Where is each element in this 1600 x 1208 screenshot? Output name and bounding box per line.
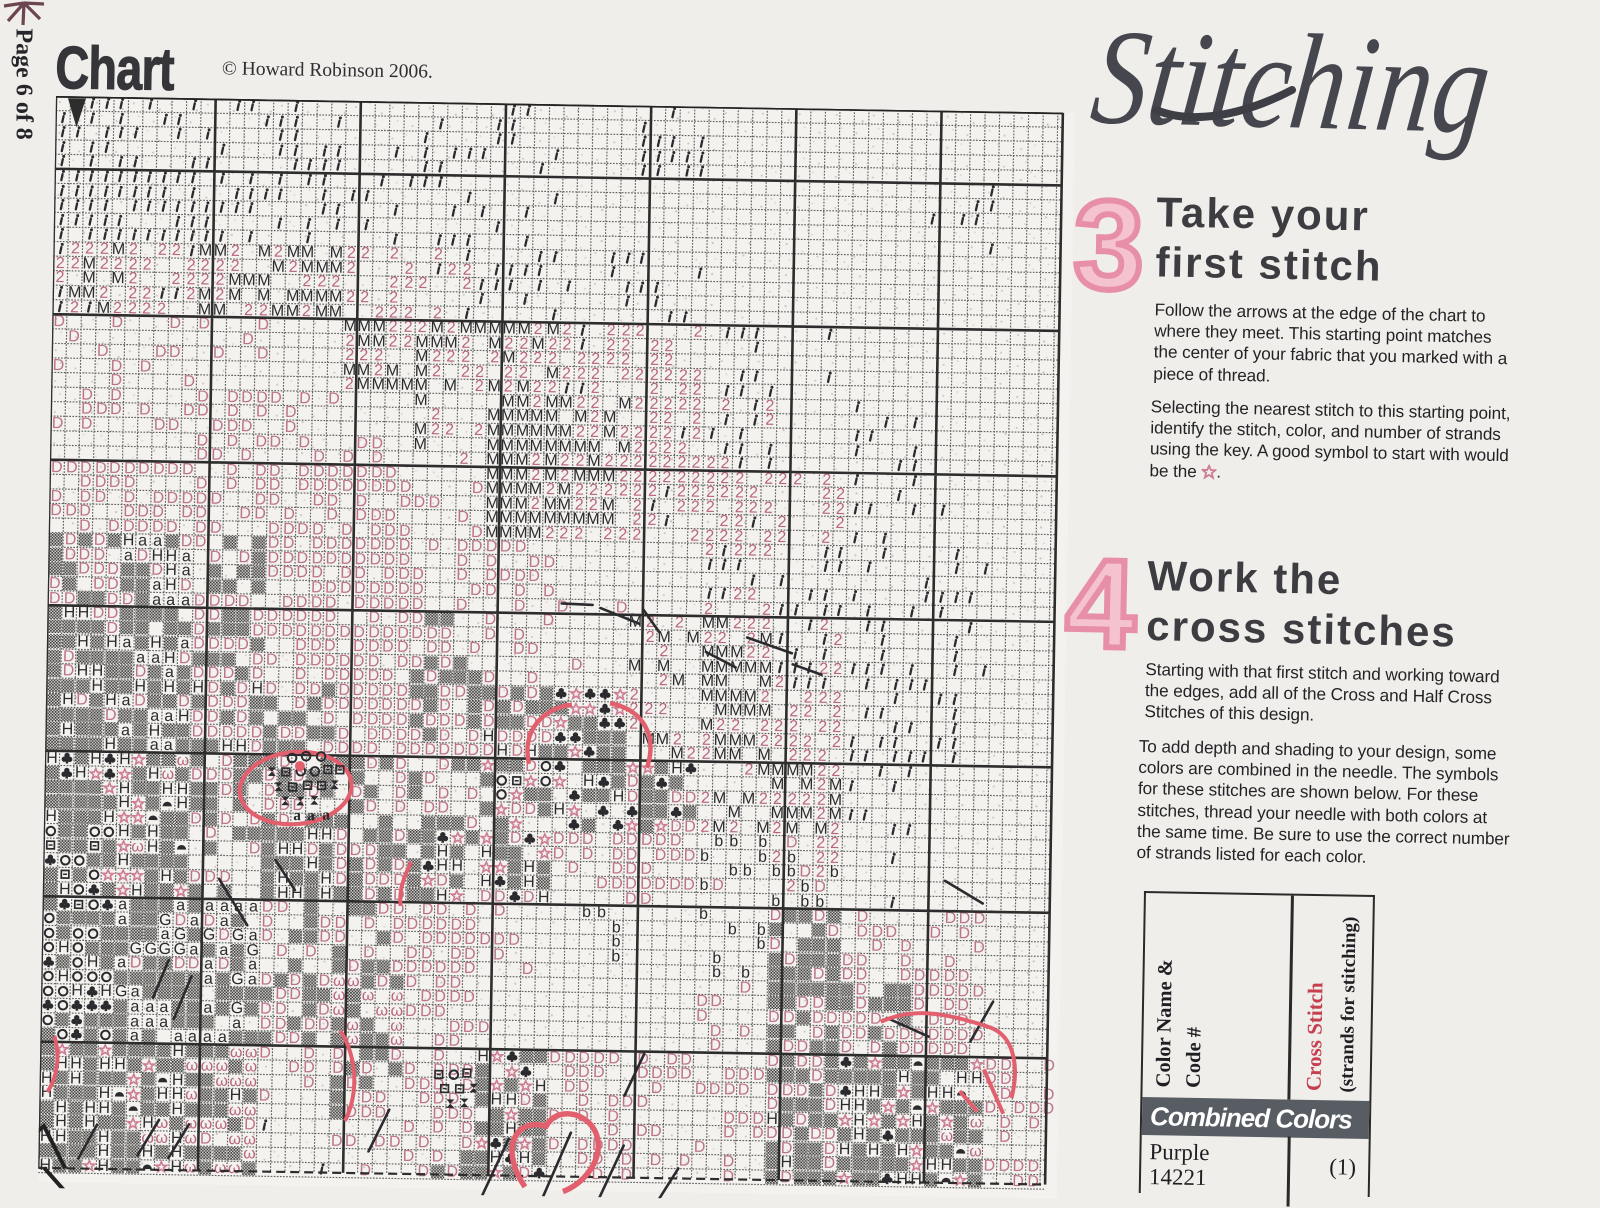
svg-text:ω: ω — [970, 1114, 983, 1131]
svg-text:2: 2 — [819, 690, 828, 707]
svg-text:D: D — [797, 994, 809, 1011]
svg-text:H: H — [192, 679, 204, 696]
svg-text:D: D — [413, 494, 425, 511]
svg-text:D: D — [998, 1158, 1010, 1175]
svg-text:D: D — [454, 684, 466, 701]
svg-text:M: M — [573, 439, 587, 456]
svg-text:M: M — [800, 776, 814, 793]
svg-text:H: H — [75, 764, 87, 781]
svg-text:ω: ω — [969, 1143, 982, 1160]
svg-text:M: M — [743, 732, 757, 749]
svg-text:D: D — [437, 799, 449, 816]
svg-text:D: D — [549, 1049, 561, 1066]
svg-text:a: a — [145, 1014, 154, 1031]
svg-text:D: D — [254, 505, 266, 522]
svg-text:D: D — [212, 418, 224, 435]
svg-text:M: M — [287, 244, 301, 261]
svg-text:M: M — [700, 688, 714, 705]
svg-text:ω: ω — [155, 1130, 168, 1147]
svg-text:M: M — [529, 438, 543, 455]
svg-text:2: 2 — [100, 256, 109, 273]
svg-text:M: M — [603, 424, 617, 441]
svg-text:a: a — [151, 650, 160, 667]
svg-text:D: D — [856, 923, 868, 940]
svg-text:D: D — [167, 461, 179, 478]
svg-text:D: D — [223, 665, 235, 682]
svg-text:D: D — [737, 1110, 749, 1127]
svg-text:H: H — [55, 1128, 67, 1145]
svg-text:D: D — [842, 966, 854, 983]
svg-text:H: H — [583, 773, 595, 790]
svg-text:D: D — [524, 801, 536, 818]
svg-text:H: H — [868, 1142, 880, 1159]
svg-text:b: b — [729, 862, 738, 879]
svg-text:a: a — [307, 807, 315, 824]
svg-text:D: D — [169, 344, 181, 361]
svg-text:D: D — [338, 696, 350, 713]
svg-text:M: M — [529, 481, 543, 498]
svg-text:M: M — [757, 762, 771, 779]
svg-text:M: M — [329, 260, 343, 277]
svg-text:D: D — [456, 567, 468, 584]
svg-text:D: D — [467, 786, 479, 803]
svg-text:D: D — [405, 974, 417, 991]
svg-text:M: M — [430, 334, 444, 351]
svg-text:M: M — [300, 288, 314, 305]
svg-text:D: D — [739, 1023, 751, 1040]
svg-text:D: D — [135, 663, 147, 680]
svg-text:D: D — [423, 799, 435, 816]
svg-text:D: D — [220, 811, 232, 828]
svg-text:H: H — [98, 1100, 110, 1117]
svg-text:M: M — [371, 376, 385, 393]
svg-text:D: D — [484, 626, 496, 643]
svg-text:D: D — [332, 1060, 344, 1077]
svg-text:ω: ω — [186, 1057, 199, 1074]
svg-text:D: D — [768, 1009, 780, 1026]
svg-text:D: D — [168, 417, 180, 434]
svg-text:D: D — [241, 418, 253, 435]
svg-text:M: M — [112, 241, 126, 258]
svg-text:M: M — [713, 790, 727, 807]
svg-text:D: D — [166, 490, 178, 507]
svg-text:M: M — [544, 467, 558, 484]
svg-text:2: 2 — [635, 367, 644, 384]
svg-text:D: D — [334, 929, 346, 946]
svg-text:H: H — [613, 788, 625, 805]
svg-text:ω: ω — [201, 1058, 214, 1075]
svg-text:D: D — [1013, 1100, 1025, 1117]
svg-text:M: M — [587, 468, 601, 485]
svg-text:D: D — [394, 799, 406, 816]
svg-text:D: D — [827, 923, 839, 940]
svg-text:D: D — [627, 789, 639, 806]
svg-text:D: D — [238, 549, 250, 566]
svg-text:H: H — [171, 1101, 183, 1118]
svg-text:M: M — [758, 703, 772, 720]
svg-text:M: M — [82, 284, 96, 301]
svg-text:D: D — [671, 789, 683, 806]
svg-text:M: M — [531, 336, 545, 353]
svg-text:M: M — [444, 334, 458, 351]
svg-text:D: D — [331, 1133, 343, 1150]
svg-text:D: D — [259, 1087, 271, 1104]
svg-text:M: M — [786, 762, 800, 779]
svg-text:D: D — [463, 1019, 475, 1036]
svg-text:2: 2 — [71, 255, 80, 272]
svg-text:2: 2 — [744, 762, 753, 779]
svg-text:2: 2 — [701, 790, 710, 807]
svg-text:G: G — [158, 941, 171, 958]
svg-text:D: D — [411, 625, 423, 642]
svg-text:2: 2 — [461, 364, 470, 381]
svg-text:2: 2 — [445, 421, 454, 438]
svg-text:D: D — [203, 913, 215, 930]
svg-text:D: D — [611, 875, 623, 892]
svg-text:D: D — [392, 959, 404, 976]
svg-text:D: D — [183, 402, 195, 419]
svg-text:D: D — [984, 1100, 996, 1117]
svg-text:D: D — [261, 928, 273, 945]
svg-text:H: H — [671, 760, 683, 777]
svg-text:H: H — [898, 1069, 910, 1086]
svg-text:D: D — [1028, 1115, 1040, 1132]
svg-text:D: D — [483, 669, 495, 686]
svg-text:H: H — [45, 808, 57, 825]
svg-text:D: D — [472, 480, 484, 497]
svg-text:b: b — [743, 862, 752, 879]
svg-text:D: D — [724, 1081, 736, 1098]
svg-text:D: D — [269, 434, 281, 451]
svg-text:D: D — [928, 983, 940, 1000]
svg-text:D: D — [404, 1076, 416, 1093]
svg-text:D: D — [813, 966, 825, 983]
svg-text:D: D — [298, 434, 310, 451]
svg-text:D: D — [636, 1094, 648, 1111]
svg-text:D: D — [795, 1111, 807, 1128]
svg-text:D: D — [180, 577, 192, 594]
svg-text:D: D — [190, 810, 202, 827]
svg-text:D: D — [323, 711, 335, 728]
svg-text:H: H — [91, 678, 103, 695]
svg-text:D: D — [913, 996, 925, 1013]
svg-text:D: D — [197, 402, 209, 419]
svg-text:D: D — [304, 1016, 316, 1033]
svg-text:M: M — [443, 377, 457, 394]
svg-text:D: D — [299, 390, 311, 407]
svg-text:b: b — [756, 936, 765, 953]
svg-text:D: D — [218, 927, 230, 944]
svg-text:H: H — [839, 1097, 851, 1114]
svg-text:D: D — [527, 641, 539, 658]
svg-text:2: 2 — [648, 483, 657, 500]
svg-text:D: D — [266, 623, 278, 640]
svg-text:2: 2 — [574, 526, 583, 543]
svg-text:M: M — [672, 672, 686, 689]
svg-text:H: H — [117, 852, 129, 869]
svg-text:D: D — [397, 654, 409, 671]
svg-text:H: H — [176, 795, 188, 812]
svg-text:D: D — [139, 401, 151, 418]
svg-text:D: D — [447, 1106, 459, 1123]
svg-text:a: a — [248, 971, 257, 988]
svg-text:M: M — [828, 806, 842, 823]
svg-text:D: D — [207, 724, 219, 741]
svg-text:M: M — [573, 468, 587, 485]
svg-text:D: D — [810, 1126, 822, 1143]
svg-text:D: D — [181, 504, 193, 521]
svg-text:D: D — [205, 825, 217, 842]
svg-text:D: D — [426, 668, 438, 685]
svg-text:D: D — [366, 755, 378, 772]
svg-text:D: D — [93, 576, 105, 593]
svg-text:D: D — [548, 1136, 560, 1153]
svg-text:D: D — [152, 519, 164, 536]
svg-text:2: 2 — [347, 260, 356, 277]
svg-text:2: 2 — [634, 396, 643, 413]
svg-text:D: D — [428, 494, 440, 511]
svg-text:2: 2 — [562, 336, 571, 353]
svg-text:H: H — [925, 1157, 937, 1174]
svg-text:2: 2 — [677, 498, 686, 515]
svg-text:2: 2 — [474, 422, 483, 439]
svg-text:D: D — [178, 693, 190, 710]
svg-text:D: D — [1042, 1100, 1054, 1117]
svg-text:D: D — [255, 433, 267, 450]
svg-text:D: D — [399, 494, 411, 511]
svg-text:D: D — [294, 695, 306, 712]
svg-text:2: 2 — [748, 543, 757, 560]
svg-text:D: D — [242, 331, 254, 348]
svg-text:H: H — [58, 939, 70, 956]
svg-text:D: D — [210, 491, 222, 508]
svg-text:M: M — [372, 333, 386, 350]
svg-text:2: 2 — [786, 878, 795, 895]
svg-text:G: G — [231, 971, 244, 988]
svg-text:D: D — [485, 582, 497, 599]
svg-text:D: D — [376, 973, 388, 990]
svg-text:D: D — [885, 924, 897, 941]
svg-text:D: D — [192, 723, 204, 740]
svg-text:H: H — [292, 841, 304, 858]
svg-text:D: D — [66, 459, 78, 476]
svg-text:M: M — [413, 436, 427, 453]
svg-text:M: M — [656, 731, 670, 748]
svg-text:D: D — [363, 944, 375, 961]
svg-text:2: 2 — [431, 421, 440, 438]
svg-text:D: D — [303, 1074, 315, 1091]
svg-text:D: D — [381, 726, 393, 743]
svg-text:D: D — [510, 830, 522, 847]
svg-text:2: 2 — [692, 426, 701, 443]
svg-text:D: D — [440, 654, 452, 671]
svg-text:M: M — [228, 287, 242, 304]
svg-text:2: 2 — [360, 289, 369, 306]
svg-text:2: 2 — [632, 527, 641, 544]
svg-text:H: H — [178, 708, 190, 725]
svg-text:H: H — [170, 1159, 182, 1176]
svg-text:D: D — [193, 635, 205, 652]
svg-text:H: H — [505, 1092, 517, 1109]
svg-text:D: D — [695, 1081, 707, 1098]
svg-text:H: H — [100, 983, 112, 1000]
svg-text:D: D — [826, 1010, 838, 1027]
svg-text:ω: ω — [375, 1002, 388, 1019]
svg-text:D: D — [270, 390, 282, 407]
svg-text:D: D — [471, 538, 483, 555]
svg-text:D: D — [1027, 1173, 1039, 1190]
svg-text:D: D — [1043, 1058, 1055, 1075]
svg-text:ω: ω — [229, 1073, 242, 1090]
svg-text:D: D — [110, 401, 122, 418]
svg-text:M: M — [400, 377, 414, 394]
svg-text:D: D — [310, 652, 322, 669]
svg-text:D: D — [766, 1125, 778, 1142]
svg-text:2: 2 — [390, 246, 399, 263]
svg-text:D: D — [153, 461, 165, 478]
svg-text:M: M — [617, 439, 631, 456]
svg-text:2: 2 — [171, 271, 180, 288]
svg-text:D: D — [767, 1053, 779, 1070]
svg-text:2: 2 — [647, 512, 656, 529]
svg-text:D: D — [200, 1131, 212, 1148]
svg-text:a: a — [203, 1000, 212, 1017]
svg-text:D: D — [753, 1067, 765, 1084]
svg-text:D: D — [222, 724, 234, 741]
svg-text:a: a — [190, 912, 199, 929]
svg-text:ω: ω — [228, 1131, 241, 1148]
svg-text:ω: ω — [230, 1044, 243, 1061]
svg-text:D: D — [280, 725, 292, 742]
svg-text:G: G — [115, 983, 128, 1000]
svg-text:M: M — [558, 438, 572, 455]
svg-text:2: 2 — [55, 269, 64, 286]
svg-text:a: a — [121, 722, 130, 739]
svg-text:M: M — [799, 805, 813, 822]
svg-text:ω: ω — [200, 1116, 213, 1133]
svg-text:D: D — [208, 636, 220, 653]
svg-text:D: D — [571, 657, 583, 674]
svg-text:H: H — [87, 954, 99, 971]
svg-text:2: 2 — [706, 499, 715, 516]
svg-text:2: 2 — [733, 586, 742, 603]
svg-text:M: M — [770, 805, 784, 822]
svg-text:2: 2 — [759, 791, 768, 808]
svg-text:ω: ω — [131, 838, 144, 855]
svg-text:D: D — [298, 477, 310, 494]
svg-text:M: M — [300, 259, 314, 276]
svg-text:D: D — [265, 681, 277, 698]
svg-text:ω: ω — [244, 1073, 257, 1090]
svg-text:D: D — [166, 519, 178, 536]
svg-text:H: H — [160, 868, 172, 885]
svg-text:D: D — [257, 345, 269, 362]
svg-text:M: M — [574, 409, 588, 426]
svg-text:2: 2 — [559, 525, 568, 542]
svg-text:M: M — [199, 242, 213, 259]
svg-text:H: H — [853, 1126, 865, 1143]
svg-text:D: D — [237, 636, 249, 653]
svg-text:M: M — [686, 630, 700, 647]
svg-text:D: D — [155, 344, 167, 361]
svg-text:H: H — [71, 982, 83, 999]
svg-text:ω: ω — [332, 1002, 345, 1019]
svg-text:D: D — [483, 713, 495, 730]
svg-text:2: 2 — [690, 528, 699, 545]
svg-text:D: D — [282, 564, 294, 581]
svg-text:D: D — [359, 1162, 371, 1179]
svg-text:H: H — [97, 1158, 109, 1175]
svg-text:D: D — [432, 1148, 444, 1165]
svg-text:D: D — [823, 1155, 835, 1172]
svg-text:D: D — [179, 650, 191, 667]
svg-text:D: D — [723, 1124, 735, 1141]
svg-text:D: D — [958, 925, 970, 942]
svg-text:H: H — [481, 844, 493, 861]
svg-text:D: D — [410, 697, 422, 714]
svg-text:2: 2 — [577, 366, 586, 383]
svg-text:a: a — [293, 807, 301, 824]
svg-text:M: M — [488, 335, 502, 352]
svg-text:D: D — [607, 1137, 619, 1154]
svg-text:H: H — [148, 766, 160, 783]
svg-text:ω: ω — [177, 752, 190, 769]
svg-text:2: 2 — [764, 471, 773, 488]
svg-text:D: D — [174, 955, 186, 972]
svg-text:D: D — [236, 724, 248, 741]
svg-text:H: H — [911, 1113, 923, 1130]
svg-text:H: H — [162, 781, 174, 798]
svg-text:2: 2 — [777, 529, 786, 546]
svg-text:2: 2 — [462, 276, 471, 293]
svg-text:D: D — [973, 939, 985, 956]
svg-text:b: b — [728, 921, 737, 938]
svg-text:D: D — [81, 415, 93, 432]
svg-text:ω: ω — [184, 1159, 197, 1176]
svg-text:D: D — [784, 951, 796, 968]
svg-text:D: D — [929, 925, 941, 942]
svg-text:D: D — [650, 1123, 662, 1140]
svg-text:D: D — [683, 877, 695, 894]
svg-text:ω: ω — [184, 1130, 197, 1147]
svg-text:a: a — [232, 1015, 241, 1032]
svg-text:D: D — [1012, 1173, 1024, 1190]
svg-text:M: M — [557, 510, 571, 527]
svg-text:2: 2 — [644, 701, 653, 718]
svg-text:D: D — [182, 461, 194, 478]
svg-text:H: H — [896, 1171, 908, 1188]
svg-text:2: 2 — [705, 542, 714, 559]
svg-text:2: 2 — [749, 500, 758, 517]
svg-text:D: D — [582, 846, 594, 863]
svg-text:D: D — [461, 1135, 473, 1152]
svg-text:D: D — [670, 847, 682, 864]
svg-text:2: 2 — [691, 499, 700, 516]
svg-text:D: D — [543, 554, 555, 571]
svg-text:D: D — [528, 568, 540, 585]
svg-text:M: M — [343, 362, 357, 379]
svg-text:2: 2 — [403, 334, 412, 351]
svg-text:2: 2 — [833, 661, 842, 678]
svg-text:D: D — [138, 460, 150, 477]
svg-text:2: 2 — [432, 363, 441, 380]
svg-text:M: M — [414, 392, 428, 409]
svg-text:D: D — [446, 1164, 458, 1181]
svg-text:D: D — [385, 479, 397, 496]
svg-text:M: M — [111, 270, 125, 287]
svg-text:D: D — [154, 417, 166, 434]
svg-text:D: D — [136, 547, 148, 564]
